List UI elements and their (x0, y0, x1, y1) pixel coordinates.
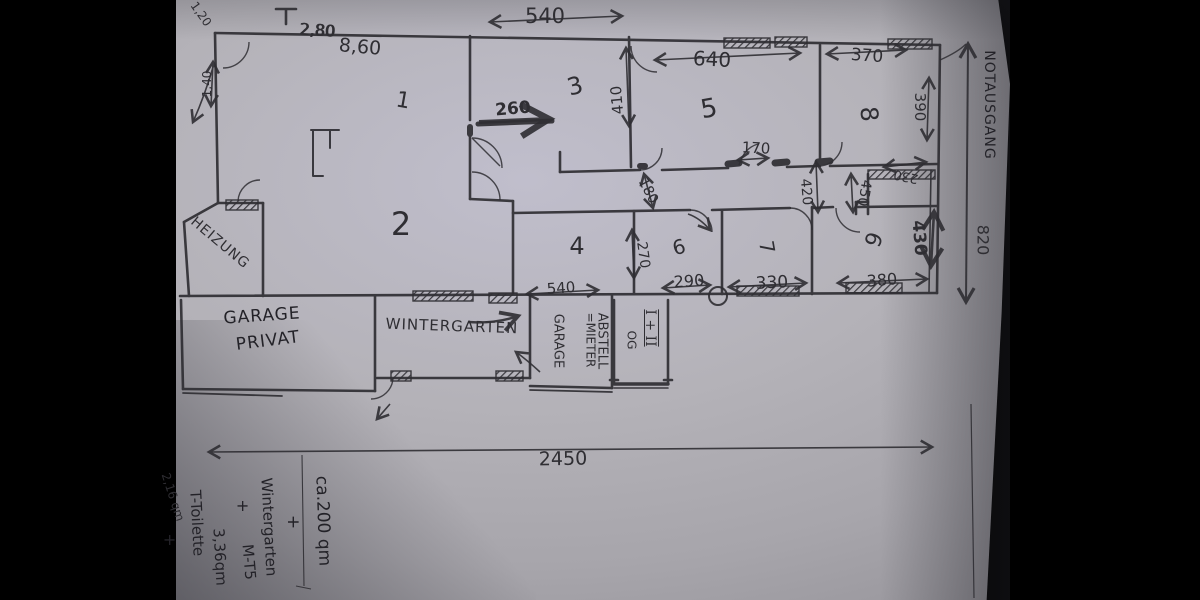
dimension-arrows (193, 16, 974, 598)
dim-280: 2,80 (299, 19, 336, 40)
dim-2450: 2450 (539, 448, 588, 471)
room-number-2: 2 (391, 205, 411, 243)
label-notausgang: NOTAUSGANG (981, 50, 997, 159)
note-plus-a: + (283, 515, 303, 529)
note-plus-c: + (161, 533, 180, 546)
dim-410: 410 (607, 85, 627, 115)
dim-330: 330 (755, 272, 788, 294)
dim-260: 260 (494, 97, 531, 120)
dim-390: 390 (911, 93, 929, 122)
room-number-4: 4 (569, 232, 584, 260)
note-plus-b: + (234, 499, 253, 512)
dim-540-bottom: 540 (546, 278, 576, 298)
note-toilette-area: 3,36qm (210, 528, 231, 586)
note-area-total: ca.200 qm (311, 475, 334, 566)
label-og-line2: =MIETER (584, 313, 597, 368)
label-floors-i-ii: I + II (642, 309, 658, 346)
dim-420: 420 (797, 178, 815, 206)
note-mt: M-T5 (238, 543, 259, 580)
dim-640: 640 (692, 46, 731, 72)
dim-380: 380 (866, 269, 898, 291)
dim-140: 1,40 (200, 71, 214, 98)
dim-820: 820 (974, 225, 993, 256)
dim-540-top: 540 (525, 4, 565, 28)
room-number-8: 8 (854, 105, 883, 123)
dim-430: 430 (907, 219, 930, 256)
label-og-line1: OG (625, 313, 638, 368)
dim-290: 290 (673, 270, 705, 291)
dim-170: 170 (741, 138, 771, 157)
note-toilette: T-Toilette (186, 489, 207, 556)
dim-860: 8,60 (338, 34, 382, 60)
dim-370: 370 (850, 45, 884, 67)
photo-of-floorplan: 1,20 2,80 8,60 1,40 540 640 370 390 410 … (0, 0, 1200, 600)
